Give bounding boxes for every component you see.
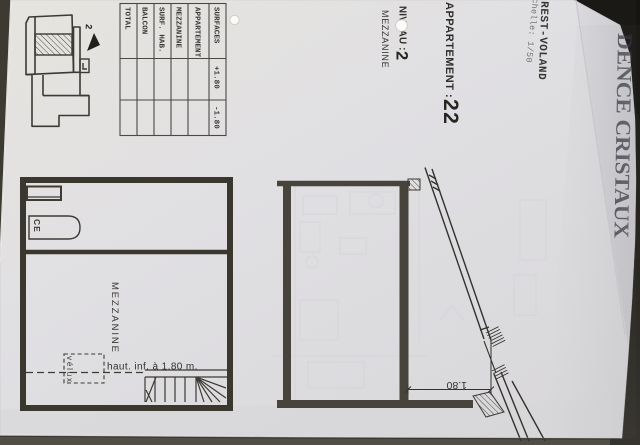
- svg-text:haut. inf. à 1.80 m.: haut. inf. à 1.80 m.: [107, 362, 198, 373]
- svg-text:TOTAL: TOTAL: [123, 7, 131, 30]
- svg-text:22: 22: [439, 99, 462, 125]
- svg-text:APPARTEMENT :: APPARTEMENT :: [443, 2, 455, 98]
- svg-text:SURF. HAB.: SURF. HAB.: [157, 7, 165, 53]
- svg-text:SURFACES: SURFACES: [212, 7, 220, 44]
- svg-text:CE: CE: [32, 219, 42, 233]
- svg-text:+1.80: +1.80: [212, 66, 220, 89]
- svg-text:2: 2: [393, 51, 411, 60]
- svg-text:vélux: vélux: [65, 356, 74, 382]
- svg-text:-1.80: -1.80: [212, 106, 220, 129]
- svg-text:2: 2: [84, 24, 94, 30]
- svg-text:APPARTEMENT: APPARTEMENT: [193, 7, 201, 58]
- svg-text:MEZZANINE: MEZZANINE: [380, 10, 390, 68]
- svg-text:MEZZANINE: MEZZANINE: [174, 7, 182, 48]
- svg-text:BALCON: BALCON: [140, 7, 148, 35]
- svg-text:MEZZANINE: MEZZANINE: [109, 282, 120, 352]
